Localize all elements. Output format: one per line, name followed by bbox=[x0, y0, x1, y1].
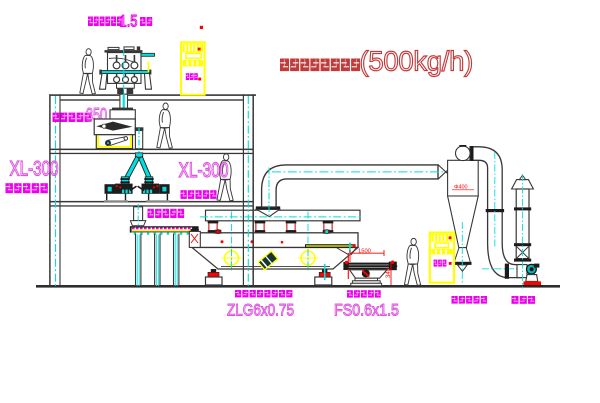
svg-text:XL-300: XL-300 bbox=[10, 158, 59, 181]
svg-text:1.5: 1.5 bbox=[120, 13, 138, 31]
svg-text:FS0.6x1.5: FS0.6x1.5 bbox=[334, 301, 399, 320]
svg-text:340: 340 bbox=[386, 267, 392, 278]
svg-text:ZLG6x0.75: ZLG6x0.75 bbox=[227, 301, 294, 320]
svg-text:(500kg/h): (500kg/h) bbox=[360, 46, 473, 77]
svg-text:1500: 1500 bbox=[358, 248, 371, 254]
svg-text:XL-300: XL-300 bbox=[179, 159, 229, 182]
